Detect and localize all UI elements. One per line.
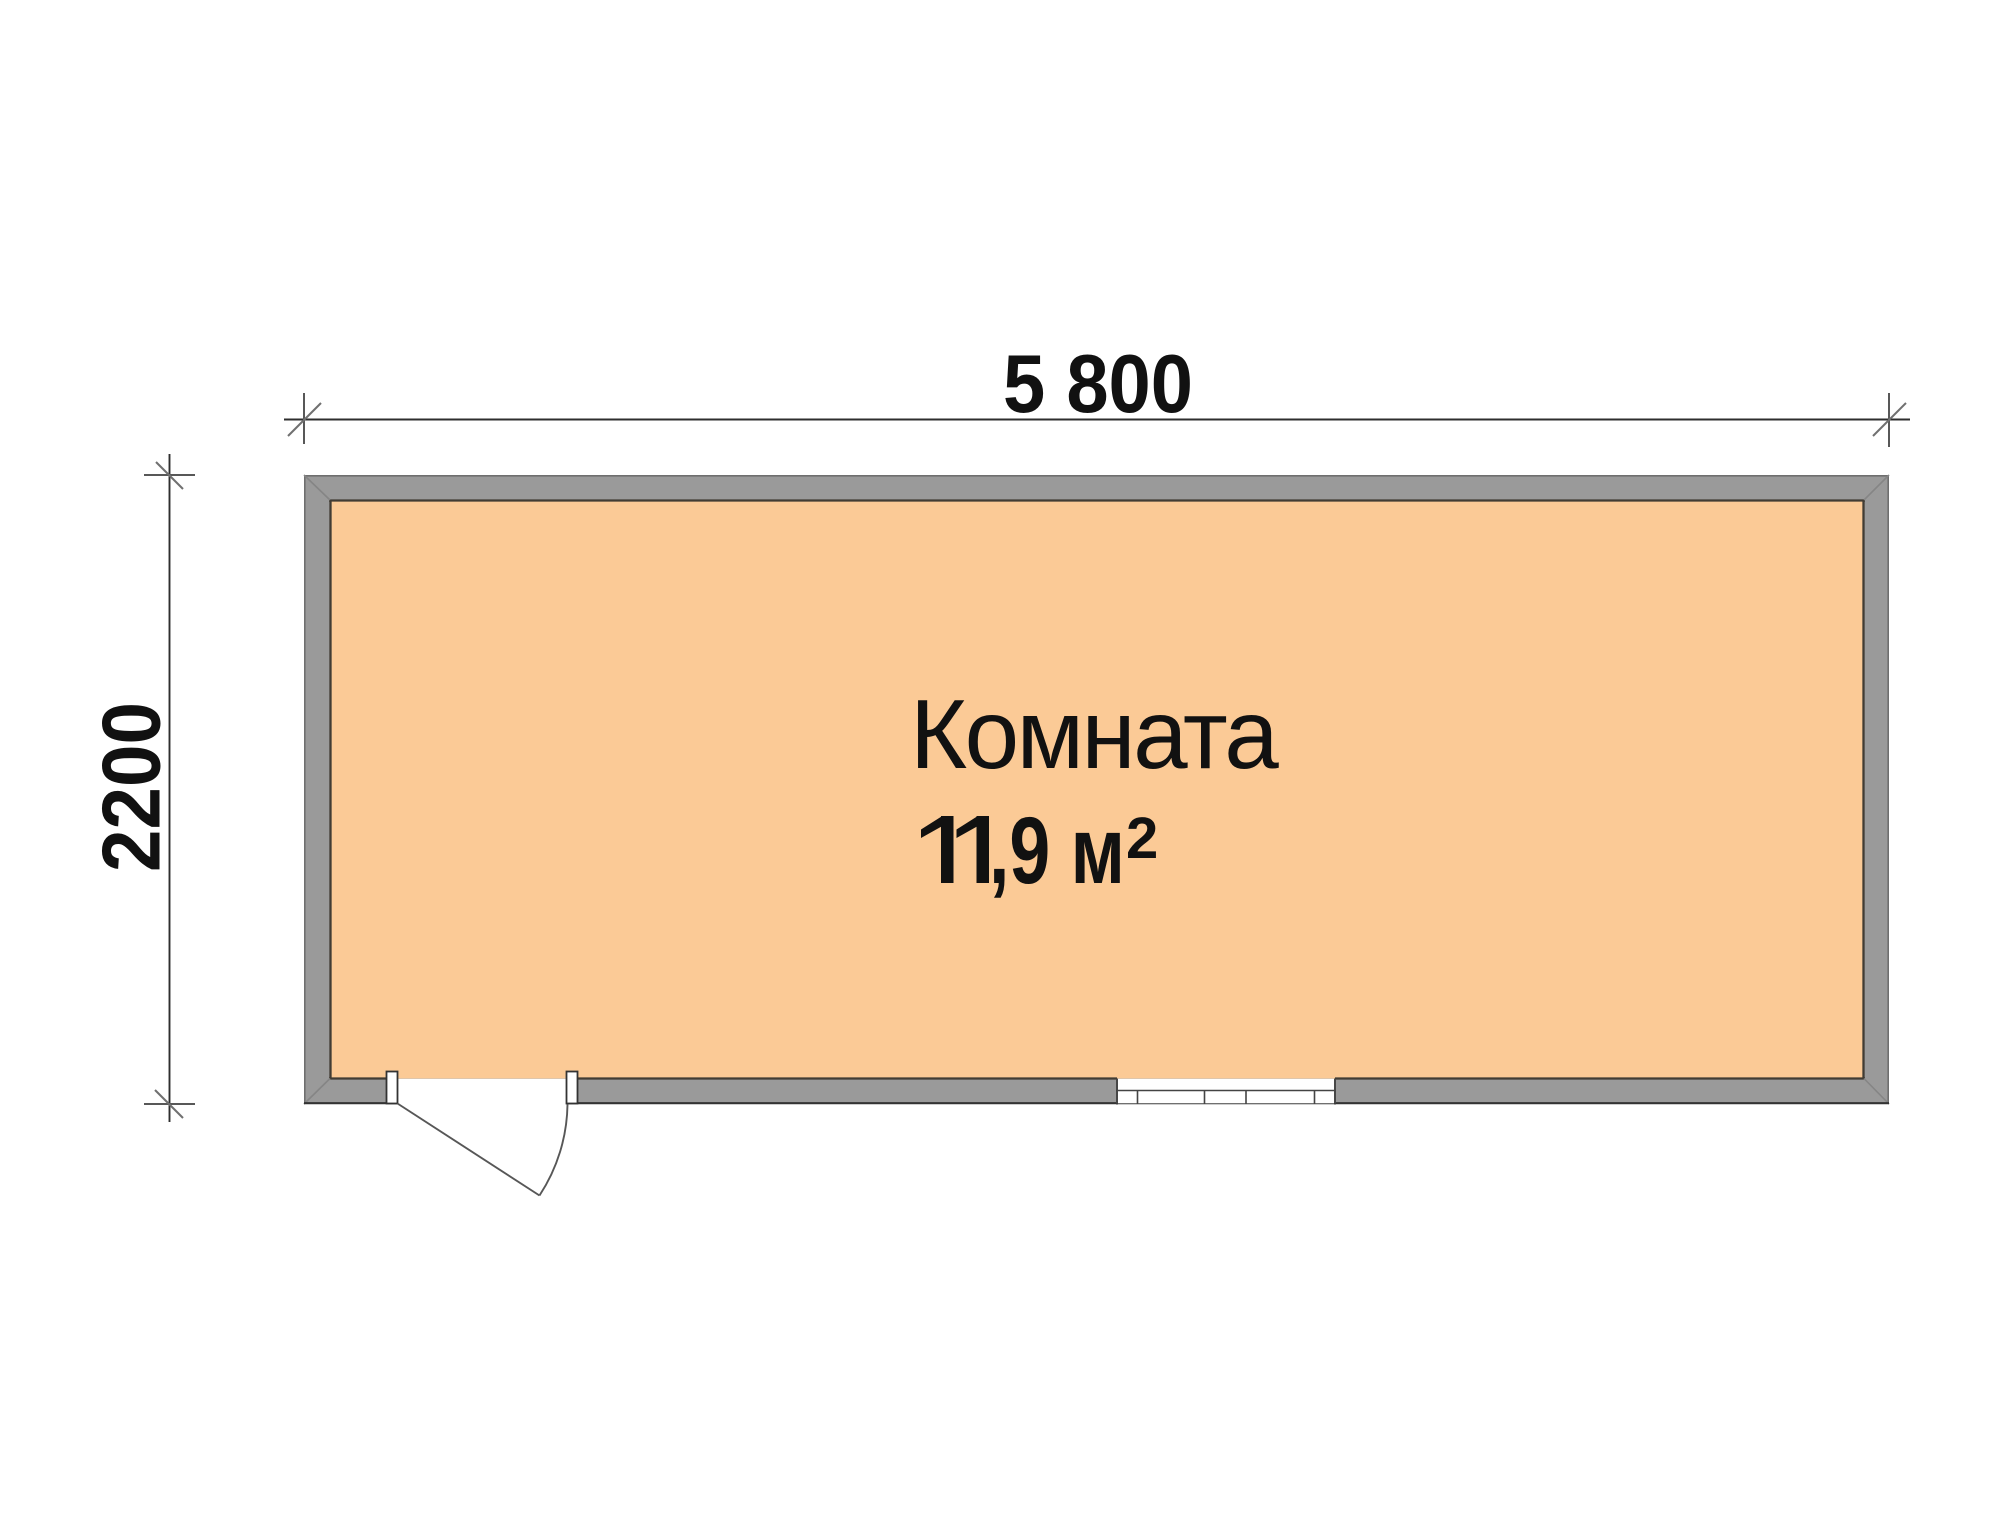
svg-text:5 800: 5 800 [1003,337,1193,430]
svg-text:2200: 2200 [85,702,178,872]
svg-text:,9 м: ,9 м [989,798,1125,904]
svg-text:Комната: Комната [910,679,1279,789]
svg-text:2: 2 [1126,806,1158,871]
